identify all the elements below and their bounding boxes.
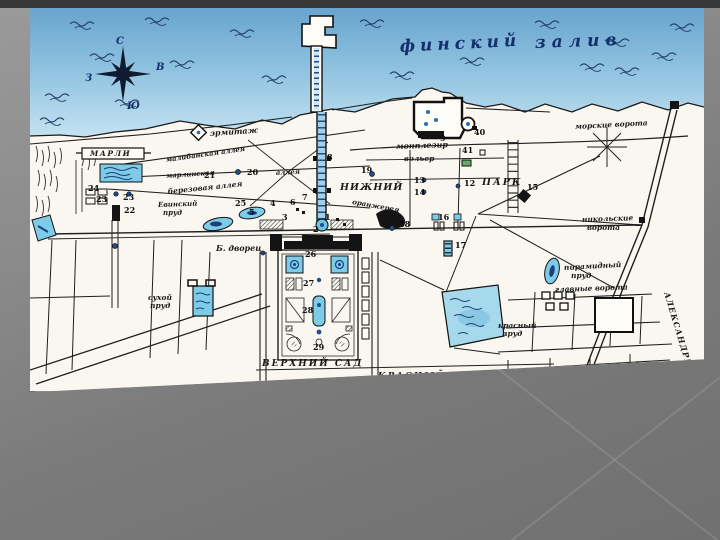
fountain-number: 15 <box>527 182 538 192</box>
map-label-gulf-2: залив <box>534 30 622 53</box>
map-label-alley-marlinskaya-2: аллея <box>276 168 301 177</box>
map-label-dry-pond-2: пруд <box>150 301 170 310</box>
cascade-colonnade <box>260 220 283 229</box>
fountain-dot <box>390 226 395 231</box>
fountain-number: 16 <box>438 212 450 222</box>
fountain-number: 25 <box>235 198 246 208</box>
fountain-number: 18 <box>399 219 411 229</box>
map-label-grand-palace: Б. дворец <box>215 243 262 253</box>
map-label-nizhny-park-1: НИЖНИЙ <box>339 180 403 193</box>
fountain-number: 24 <box>88 183 100 193</box>
fountain-number: 21 <box>204 170 215 180</box>
fountain-number: 19 <box>361 165 373 175</box>
fountain-number: 17 <box>455 240 466 250</box>
map-label-pyramid-pond-2: пруд <box>571 271 591 280</box>
shoreline-land <box>30 88 704 394</box>
fountain-number: 27 <box>303 278 314 288</box>
map-label-compass-n: С <box>116 36 124 47</box>
fountain-number: 8 <box>327 152 333 162</box>
fountain-number: 41 <box>462 145 473 155</box>
fountain-number: 9 <box>440 133 446 143</box>
red-pond <box>442 285 504 347</box>
fountain-number: 1 <box>325 212 331 222</box>
map-label-compass-w: З <box>85 73 92 84</box>
fountain-number: 7 <box>302 192 308 202</box>
fountain-number: 2 <box>313 224 319 234</box>
fountain-number: 12 <box>464 178 475 188</box>
fountain-number: 4 <box>270 198 276 208</box>
fountain-number: 22 <box>124 205 135 215</box>
map-label-nikolsky-gates-2: ворота <box>587 223 620 232</box>
map-label-compass-s: Ю <box>126 101 140 112</box>
map-label-evinsky-pond-2: пруд <box>163 208 182 217</box>
map-label-red-pond-2: пруд <box>502 329 522 338</box>
fountain-number: 23 <box>96 194 108 204</box>
map-label-compass-e: В <box>155 62 164 73</box>
fountain-number: 26 <box>305 249 317 259</box>
map-svg: финскийзаливэрмитажмонплезирвольерНИЖНИЙ… <box>30 8 704 394</box>
map-label-volier: вольер <box>404 154 435 163</box>
map-label-marli: МАРЛИ <box>89 149 131 158</box>
marli-pond <box>100 164 142 182</box>
fountain-number: 6 <box>290 197 296 207</box>
aviary-green <box>462 160 471 166</box>
fountain-number: 20 <box>247 167 259 177</box>
slide-top-strip <box>0 0 720 8</box>
peterhof-map-image: финскийзаливэрмитажмонплезирвольерНИЖНИЙ… <box>30 8 704 394</box>
fountain-number: 29 <box>313 342 325 352</box>
slide-background: финскийзаливэрмитажмонплезирвольерНИЖНИЙ… <box>0 0 720 540</box>
fountain-number: 3 <box>282 212 288 222</box>
fountain-number: 23 <box>123 192 135 202</box>
map-label-nizhny-park-2: ПАРК <box>481 177 523 188</box>
fountain-number: 5 <box>249 207 255 217</box>
fountain-number: 13 <box>414 175 426 185</box>
cascade-colonnade <box>331 220 353 229</box>
fountain-number: 28 <box>302 305 314 315</box>
fountain-number: 40 <box>474 127 486 137</box>
marli-cascade-building <box>112 205 120 221</box>
fountain-number: 14 <box>414 187 426 197</box>
